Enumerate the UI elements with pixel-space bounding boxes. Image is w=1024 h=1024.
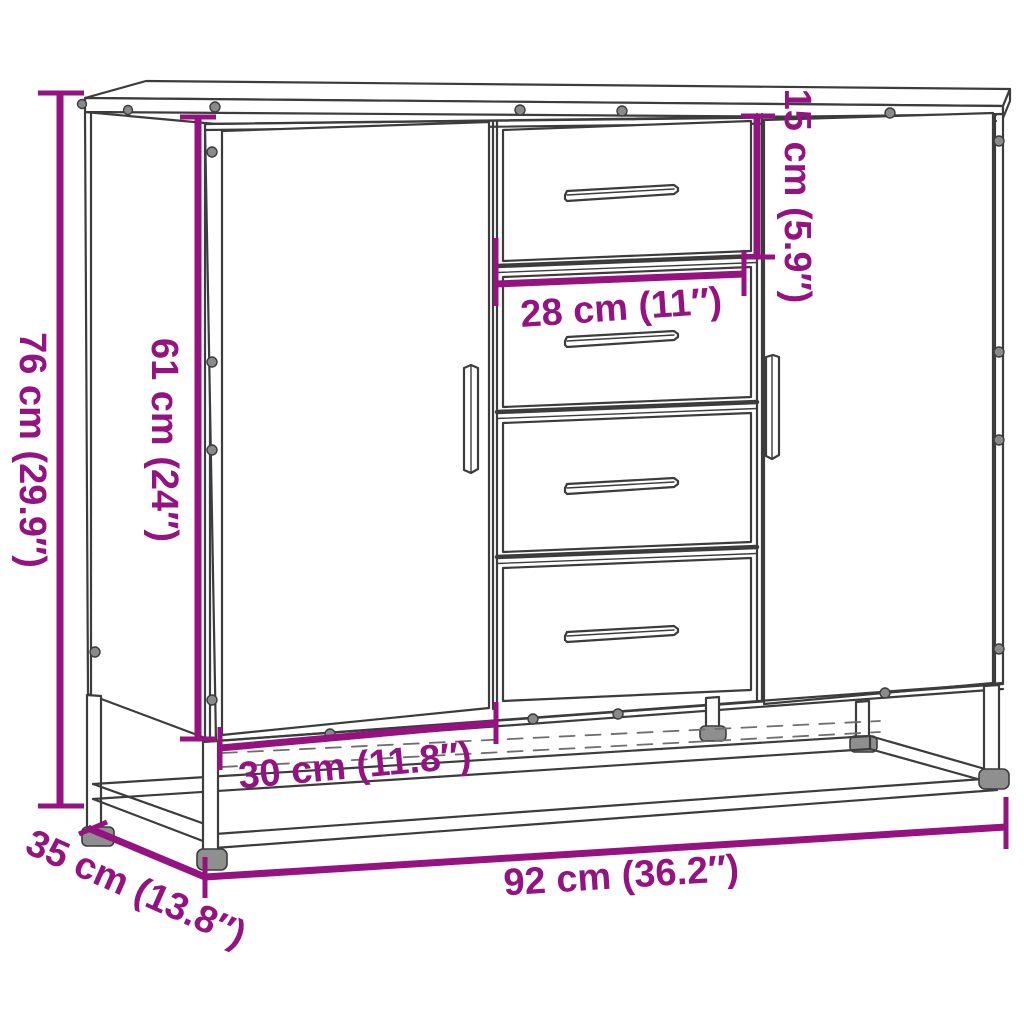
front-left-leg — [203, 741, 218, 851]
screw-icon — [994, 136, 1004, 146]
screw-icon — [124, 106, 133, 115]
left-door — [222, 122, 489, 735]
screw-icon — [994, 644, 1004, 654]
screw-icon — [210, 102, 220, 112]
middle-back-leg — [706, 697, 719, 728]
screw-icon — [613, 709, 623, 719]
dim-overall-height: 76 cm (29.9″) — [11, 93, 84, 806]
cabinet-line-art — [78, 81, 1011, 870]
screw-icon — [880, 688, 890, 698]
screw-icon — [90, 647, 100, 657]
screw-icon — [885, 108, 895, 118]
sideboard-dimension-diagram: 76 cm (29.9″) 61 cm (24″) 15 cm (5.9″) 2… — [0, 0, 1024, 1024]
screw-icon — [528, 714, 538, 724]
dim-overall-width: 92 cm (36.2″) — [205, 797, 1006, 904]
front-right-leg — [984, 685, 999, 771]
dim-label-top-drawer-height: 15 cm (5.9″) — [776, 89, 818, 304]
screw-icon — [994, 347, 1004, 357]
dimension-diagram-page: 76 cm (29.9″) 61 cm (24″) 15 cm (5.9″) 2… — [0, 0, 1024, 1024]
dim-label-door-height: 61 cm (24″) — [143, 338, 185, 542]
dim-label-overall-height: 76 cm (29.9″) — [11, 332, 53, 568]
back-left-leg — [87, 695, 101, 828]
screw-icon — [207, 357, 217, 367]
screw-icon — [78, 100, 87, 109]
screw-icon — [617, 106, 627, 116]
screw-icon — [515, 105, 525, 115]
front-left-foot — [197, 849, 227, 870]
screw-icon — [207, 445, 217, 455]
front-right-foot — [979, 769, 1009, 789]
screw-icon — [994, 435, 1004, 445]
screw-icon — [207, 147, 217, 157]
screw-icon — [207, 695, 217, 705]
